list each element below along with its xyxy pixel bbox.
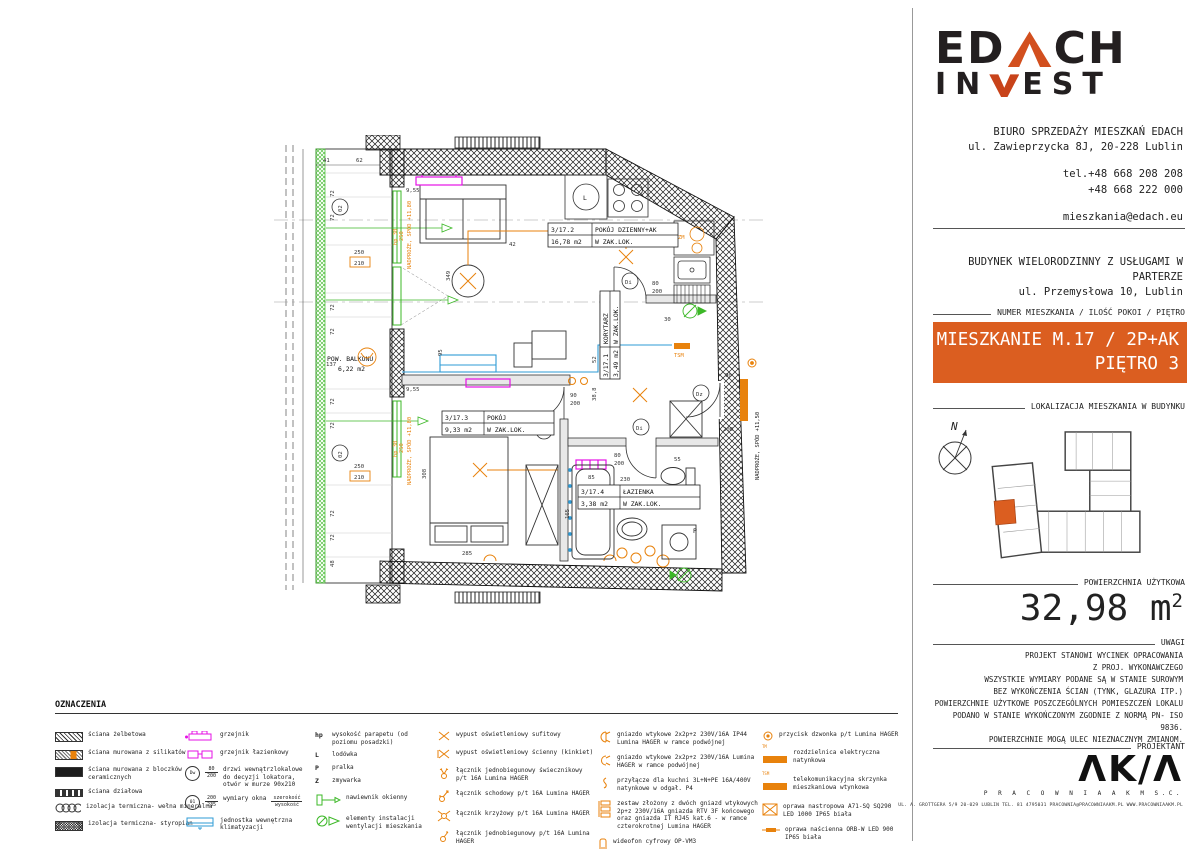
insulation-styrofoam-swatch: [55, 821, 83, 831]
door-symbol-icon: Dw: [185, 766, 200, 781]
svg-text:285: 285: [462, 551, 472, 557]
living-room-furniture: [420, 185, 566, 367]
svg-text:349: 349: [446, 271, 452, 281]
edach-invest-logo: EDCH INEST: [935, 30, 1127, 98]
contact-rule: [933, 228, 1185, 229]
svg-text:W ZAK.LOK.: W ZAK.LOK.: [487, 426, 525, 434]
svg-text:200: 200: [570, 401, 580, 407]
distribution-board-icon: [762, 754, 788, 764]
svg-text:Di: Di: [636, 426, 643, 432]
room-label-bedroom: 3/17.3 9,33 m2 POKÓJ W ZAK.LOK.: [442, 411, 554, 435]
notes-section-header: UWAGI: [933, 638, 1185, 647]
dim-label: 72: [330, 398, 336, 405]
svg-text:200: 200: [614, 461, 624, 467]
title-block: EDCH INEST BIURO SPRZEDAŻY MIESZKAŃ EDAC…: [933, 0, 1185, 849]
sales-office-contact: BIURO SPRZEDAŻY MIESZKAŃ EDACH ul. Zawie…: [933, 125, 1183, 225]
ceiling-light-icon: [437, 731, 451, 741]
bathroom-radiator-icon: [185, 749, 215, 760]
balcony-area: 6,22 m2: [338, 365, 365, 373]
ac-indoor-unit-icon: [185, 817, 215, 830]
office-address: ul. Zawieprzycka 8J, 20-228 Lublin: [933, 140, 1183, 155]
dim-label: 210: [354, 261, 364, 267]
switch-cross-icon: [437, 810, 451, 822]
dim-label: 137: [326, 362, 336, 368]
svg-text:Dz: Dz: [696, 392, 703, 398]
dim-label: 72: [330, 422, 336, 429]
svg-text:02: 02: [338, 451, 344, 458]
building-address: ul. Przemysłowa 10, Lublin: [933, 285, 1183, 300]
svg-text:200: 200: [723, 427, 733, 433]
dishwasher-label: ZM: [678, 235, 685, 241]
legend-col-devices: przycisk dzwonka p/t Lumina HAGER TMrozd…: [762, 731, 902, 849]
room-label-living: 3/17.2 16,78 m2 POKÓJ DZIENNY+AK W ZAK.L…: [548, 223, 678, 247]
svg-text:3/17.2: 3/17.2: [551, 226, 574, 234]
legend-title: OZNACZENIA: [55, 700, 898, 714]
highlighted-unit: [994, 499, 1016, 525]
designer-block: ΛK/Λ P R A C O W N I A A K M S.C. UL. A.…: [898, 752, 1183, 808]
dim-label: 72: [330, 214, 336, 221]
wall-partition-swatch: [55, 789, 83, 797]
doorbell-button-icon: [762, 731, 774, 741]
svg-text:308: 308: [422, 468, 428, 479]
svg-text:N: N: [950, 420, 958, 433]
unit-banner: MIESZKANIE M.17 / 2P+AK PIĘTRO 3: [933, 322, 1187, 383]
svg-text:95: 95: [438, 349, 444, 356]
svg-text:W ZAK.LOK.: W ZAK.LOK.: [612, 306, 620, 344]
washbasin-icon: [617, 518, 647, 540]
wall-concrete-swatch: [55, 732, 83, 742]
socket-double-icon: [598, 754, 612, 766]
switch-chandelier-icon: [437, 767, 451, 779]
svg-text:38,8: 38,8: [592, 387, 598, 401]
svg-text:165: 165: [565, 509, 571, 519]
wall-ceramic-swatch: [55, 767, 83, 777]
akm-footer: UL. A. GROTTGERA 5/9 20-029 LUBLIN TEL. …: [898, 803, 1183, 808]
svg-text:NADPROŻE, SPÓD +11,80: NADPROŻE, SPÓD +11,80: [406, 417, 413, 485]
area-section-header: POWIERZCHNIA UŻYTKOWA: [933, 578, 1185, 587]
tv-cabinet-icon: [532, 331, 566, 359]
dim-label: 72: [330, 510, 336, 517]
svg-text:52: 52: [592, 356, 598, 363]
radiator-icon: [416, 177, 462, 185]
switch-stair-icon: [437, 790, 451, 802]
notes-text: PROJEKT STANOWI WYCINEK OPRACOWANIA Z PR…: [933, 650, 1183, 746]
sheet-divider: [912, 8, 913, 841]
wall-light-icon: [437, 749, 451, 759]
svg-text:POKÓJ DZIENNY+AK: POKÓJ DZIENNY+AK: [595, 225, 657, 234]
washer-symbol: P: [315, 764, 327, 772]
dim-label: 72: [330, 304, 336, 311]
svg-text:3/17.1: 3/17.1: [602, 354, 610, 377]
svg-text:Di: Di: [625, 280, 632, 286]
dim-label: 62: [356, 158, 363, 164]
email[interactable]: mieszkania@edach.eu: [933, 210, 1183, 225]
building-info: BUDYNEK WIELORODZINNY Z USŁUGAMI W PARTE…: [933, 255, 1183, 301]
room-label-corridor: 3/17.1 3,49 m2 KORYTARZ W ZAK.LOK.: [600, 291, 620, 379]
legend-col-sockets: gniazdo wtykowe 2x2p+z 230V/16A IP44 Lum…: [598, 731, 760, 849]
svg-text:42: 42: [509, 242, 516, 248]
svg-text:3/17.4: 3/17.4: [581, 488, 604, 496]
bed-icon: [430, 437, 508, 545]
svg-text:3,38 m2: 3,38 m2: [581, 500, 608, 508]
svg-text:3/17.3: 3/17.3: [445, 414, 468, 422]
akm-name: P R A C O W N I A A K M S.C.: [898, 790, 1183, 797]
akm-logo: ΛK/Λ: [898, 752, 1183, 788]
logo-triangle-a-icon: [1008, 31, 1052, 67]
window-vent-icon: [315, 794, 341, 806]
svg-text:ŁAZIENKA: ŁAZIENKA: [622, 488, 654, 496]
radiator-icon: [185, 731, 215, 742]
dim-label: 72: [330, 328, 336, 335]
svg-text:NADPROŻE, SPÓD +11,80: NADPROŻE, SPÓD +11,80: [406, 201, 413, 269]
fridge-symbol: L: [315, 751, 327, 759]
svg-text:30: 30: [664, 317, 671, 323]
wall-silicate-swatch: [55, 750, 83, 760]
telecom-box-icon: [762, 781, 788, 791]
site-boundary-lines: [286, 145, 293, 590]
building-name: BUDYNEK WIELORODZINNY Z USŁUGAMI W PARTE…: [933, 255, 1183, 285]
svg-text:230: 230: [620, 477, 630, 483]
usable-area-value: 32,98 m2: [1020, 588, 1183, 629]
svg-text:W ZAK.LOK.: W ZAK.LOK.: [595, 238, 633, 246]
svg-text:250: 250: [399, 443, 405, 453]
unit-floor: PIĘTRO 3: [933, 353, 1179, 377]
kitchen-feed-icon: [598, 777, 612, 789]
dishwasher-symbol: Z: [315, 777, 327, 785]
toilet-icon: [661, 468, 685, 485]
legend-col-fixtures: grzejnik grzejnik łazienkowy Dw80200drzw…: [185, 731, 310, 832]
dim-label: 210: [354, 475, 364, 481]
svg-text:W ZAK.LOK.: W ZAK.LOK.: [623, 500, 661, 508]
hp-symbol: hp: [315, 731, 327, 739]
svg-text:90: 90: [725, 373, 732, 379]
dim-label: 41: [323, 158, 330, 164]
svg-text:250: 250: [399, 231, 405, 241]
office-name: BIURO SPRZEDAŻY MIESZKAŃ EDACH: [933, 125, 1183, 140]
svg-text:POKÓJ: POKÓJ: [487, 413, 506, 422]
videophone-icon: [598, 838, 608, 849]
lintel-entrance: NADPROŻE, SPÓD +11,50: [754, 412, 761, 480]
dim-label: 250: [354, 250, 364, 256]
svg-text:KORYTARZ: KORYTARZ: [602, 313, 610, 344]
floor-plan-drawing: POW. BALKONU 6,22 m2 41 62 72 72 72 72 7…: [270, 135, 770, 605]
floorplan-sheet: POW. BALKONU 6,22 m2 41 62 72 72 72 72 7…: [0, 0, 1200, 849]
svg-text:P: P: [693, 527, 697, 535]
svg-text:90: 90: [570, 393, 577, 399]
svg-text:16,78 m2: 16,78 m2: [551, 238, 582, 246]
svg-text:80: 80: [614, 453, 621, 459]
svg-text:55: 55: [674, 457, 681, 463]
electrical-symbols: TSM: [460, 231, 756, 567]
logo-triangle-v-icon: [989, 74, 1019, 97]
dim-label: 72: [330, 534, 336, 541]
svg-text:9,55: 9,55: [406, 387, 419, 393]
svg-text:3,49 m2: 3,49 m2: [612, 350, 620, 377]
bedroom-furniture: [430, 437, 558, 545]
window-symbol-icon: 01: [185, 795, 200, 810]
media-socket-set-icon: [598, 800, 612, 818]
tsm-label: TSM: [674, 353, 684, 359]
svg-text:L: L: [583, 194, 587, 202]
building-location-map: [985, 418, 1190, 568]
wall-luminaire-icon: [762, 826, 780, 834]
legend-col-switches: wypust oświetleniowy sufitowy wypust ośw…: [437, 731, 595, 845]
unit-section-header: NUMER MIESZKANIA / ILOŚĆ POKOI / PIĘTRO: [933, 308, 1185, 317]
socket-double-ip44-icon: [598, 731, 612, 743]
unit-number: MIESZKANIE M.17 / 2P+AK: [933, 329, 1179, 353]
phone-1: tel.+48 668 208 208: [933, 167, 1183, 182]
towel-radiator-icon: [576, 460, 606, 469]
dim-label: 250: [354, 464, 364, 470]
location-section-header: LOKALIZACJA MIESZKANIA W BUDYNKU: [933, 402, 1185, 411]
dim-label: 48: [330, 560, 336, 567]
legend-col-letters: hpwysokość parapetu (od poziomu posadzki…: [315, 731, 435, 830]
svg-text:200: 200: [652, 289, 662, 295]
compass-icon: N: [925, 418, 987, 488]
ventilation-icon: [315, 815, 341, 827]
svg-text:02: 02: [338, 205, 344, 212]
switch-single-icon: [437, 830, 451, 842]
dim-label: 72: [330, 190, 336, 197]
phone-2: +48 668 222 000: [933, 183, 1183, 198]
washing-machine-icon: [662, 525, 696, 559]
svg-text:85: 85: [588, 475, 595, 481]
insulation-wool-icon: [55, 803, 81, 813]
svg-text:9,33 m2: 9,33 m2: [445, 426, 472, 434]
svg-text:80: 80: [652, 281, 659, 287]
room-label-bath: 3/17.4 3,38 m2 ŁAZIENKA W ZAK.LOK.: [578, 485, 700, 509]
svg-text:9,55: 9,55: [406, 188, 419, 194]
ceiling-luminaire-icon: [762, 803, 778, 816]
